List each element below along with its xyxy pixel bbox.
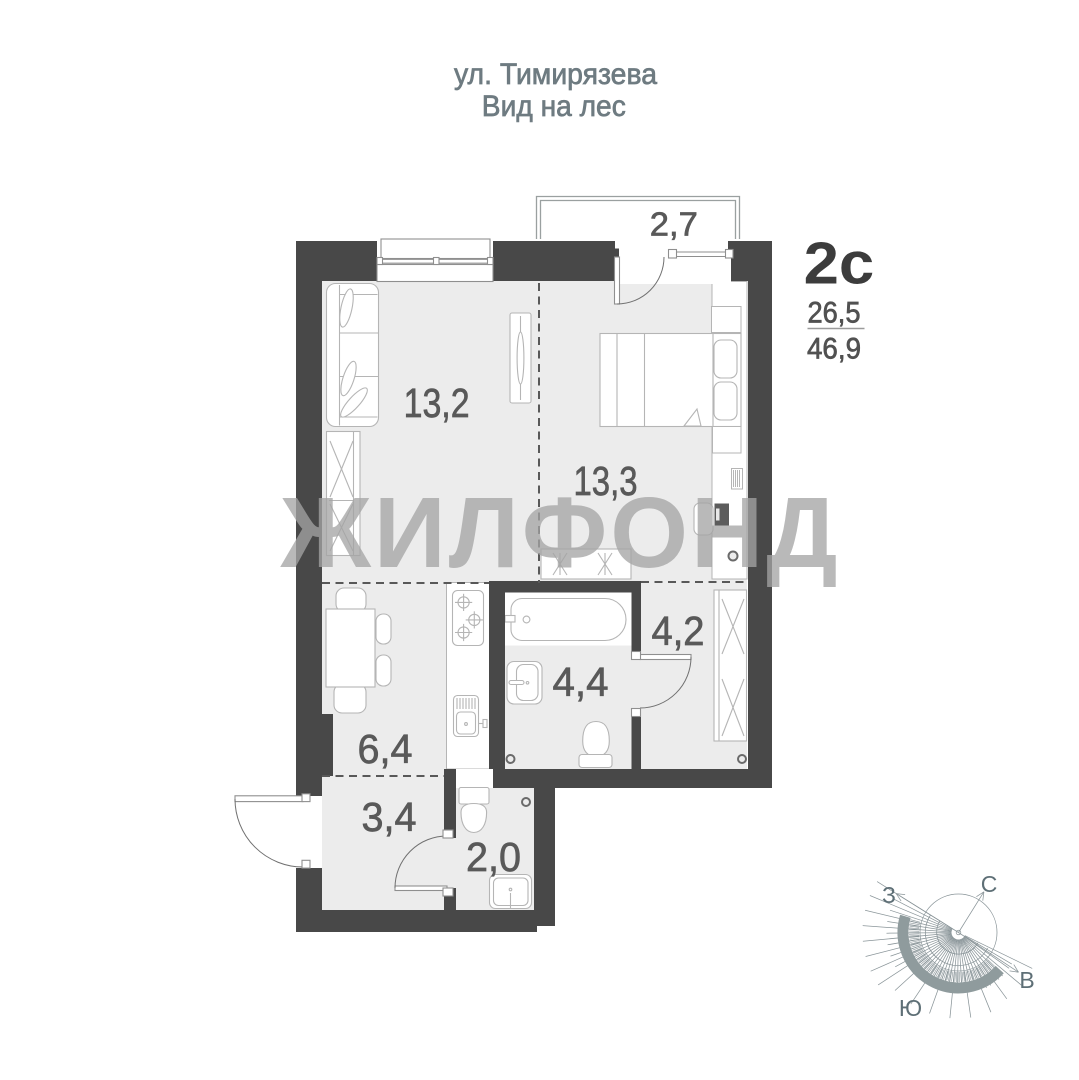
- svg-text:Ю: Ю: [899, 995, 922, 1021]
- svg-text:2,0: 2,0: [466, 834, 521, 880]
- svg-text:Вид на лес: Вид на лес: [482, 90, 626, 123]
- svg-text:В: В: [1019, 967, 1034, 993]
- svg-text:13,2: 13,2: [404, 380, 470, 426]
- svg-text:4,2: 4,2: [652, 608, 705, 654]
- svg-text:ЖИЛФОНД: ЖИЛФОНД: [279, 477, 840, 589]
- svg-text:26,5: 26,5: [808, 297, 861, 330]
- svg-text:С: С: [981, 871, 998, 897]
- svg-text:3,4: 3,4: [362, 794, 417, 840]
- svg-text:46,9: 46,9: [807, 333, 861, 366]
- svg-text:2,7: 2,7: [650, 206, 698, 243]
- svg-text:2с: 2с: [804, 231, 875, 297]
- svg-text:6,4: 6,4: [358, 726, 413, 772]
- svg-text:ул. Тимирязева: ул. Тимирязева: [454, 58, 658, 91]
- svg-text:4,4: 4,4: [553, 659, 609, 705]
- svg-text:З: З: [882, 882, 896, 908]
